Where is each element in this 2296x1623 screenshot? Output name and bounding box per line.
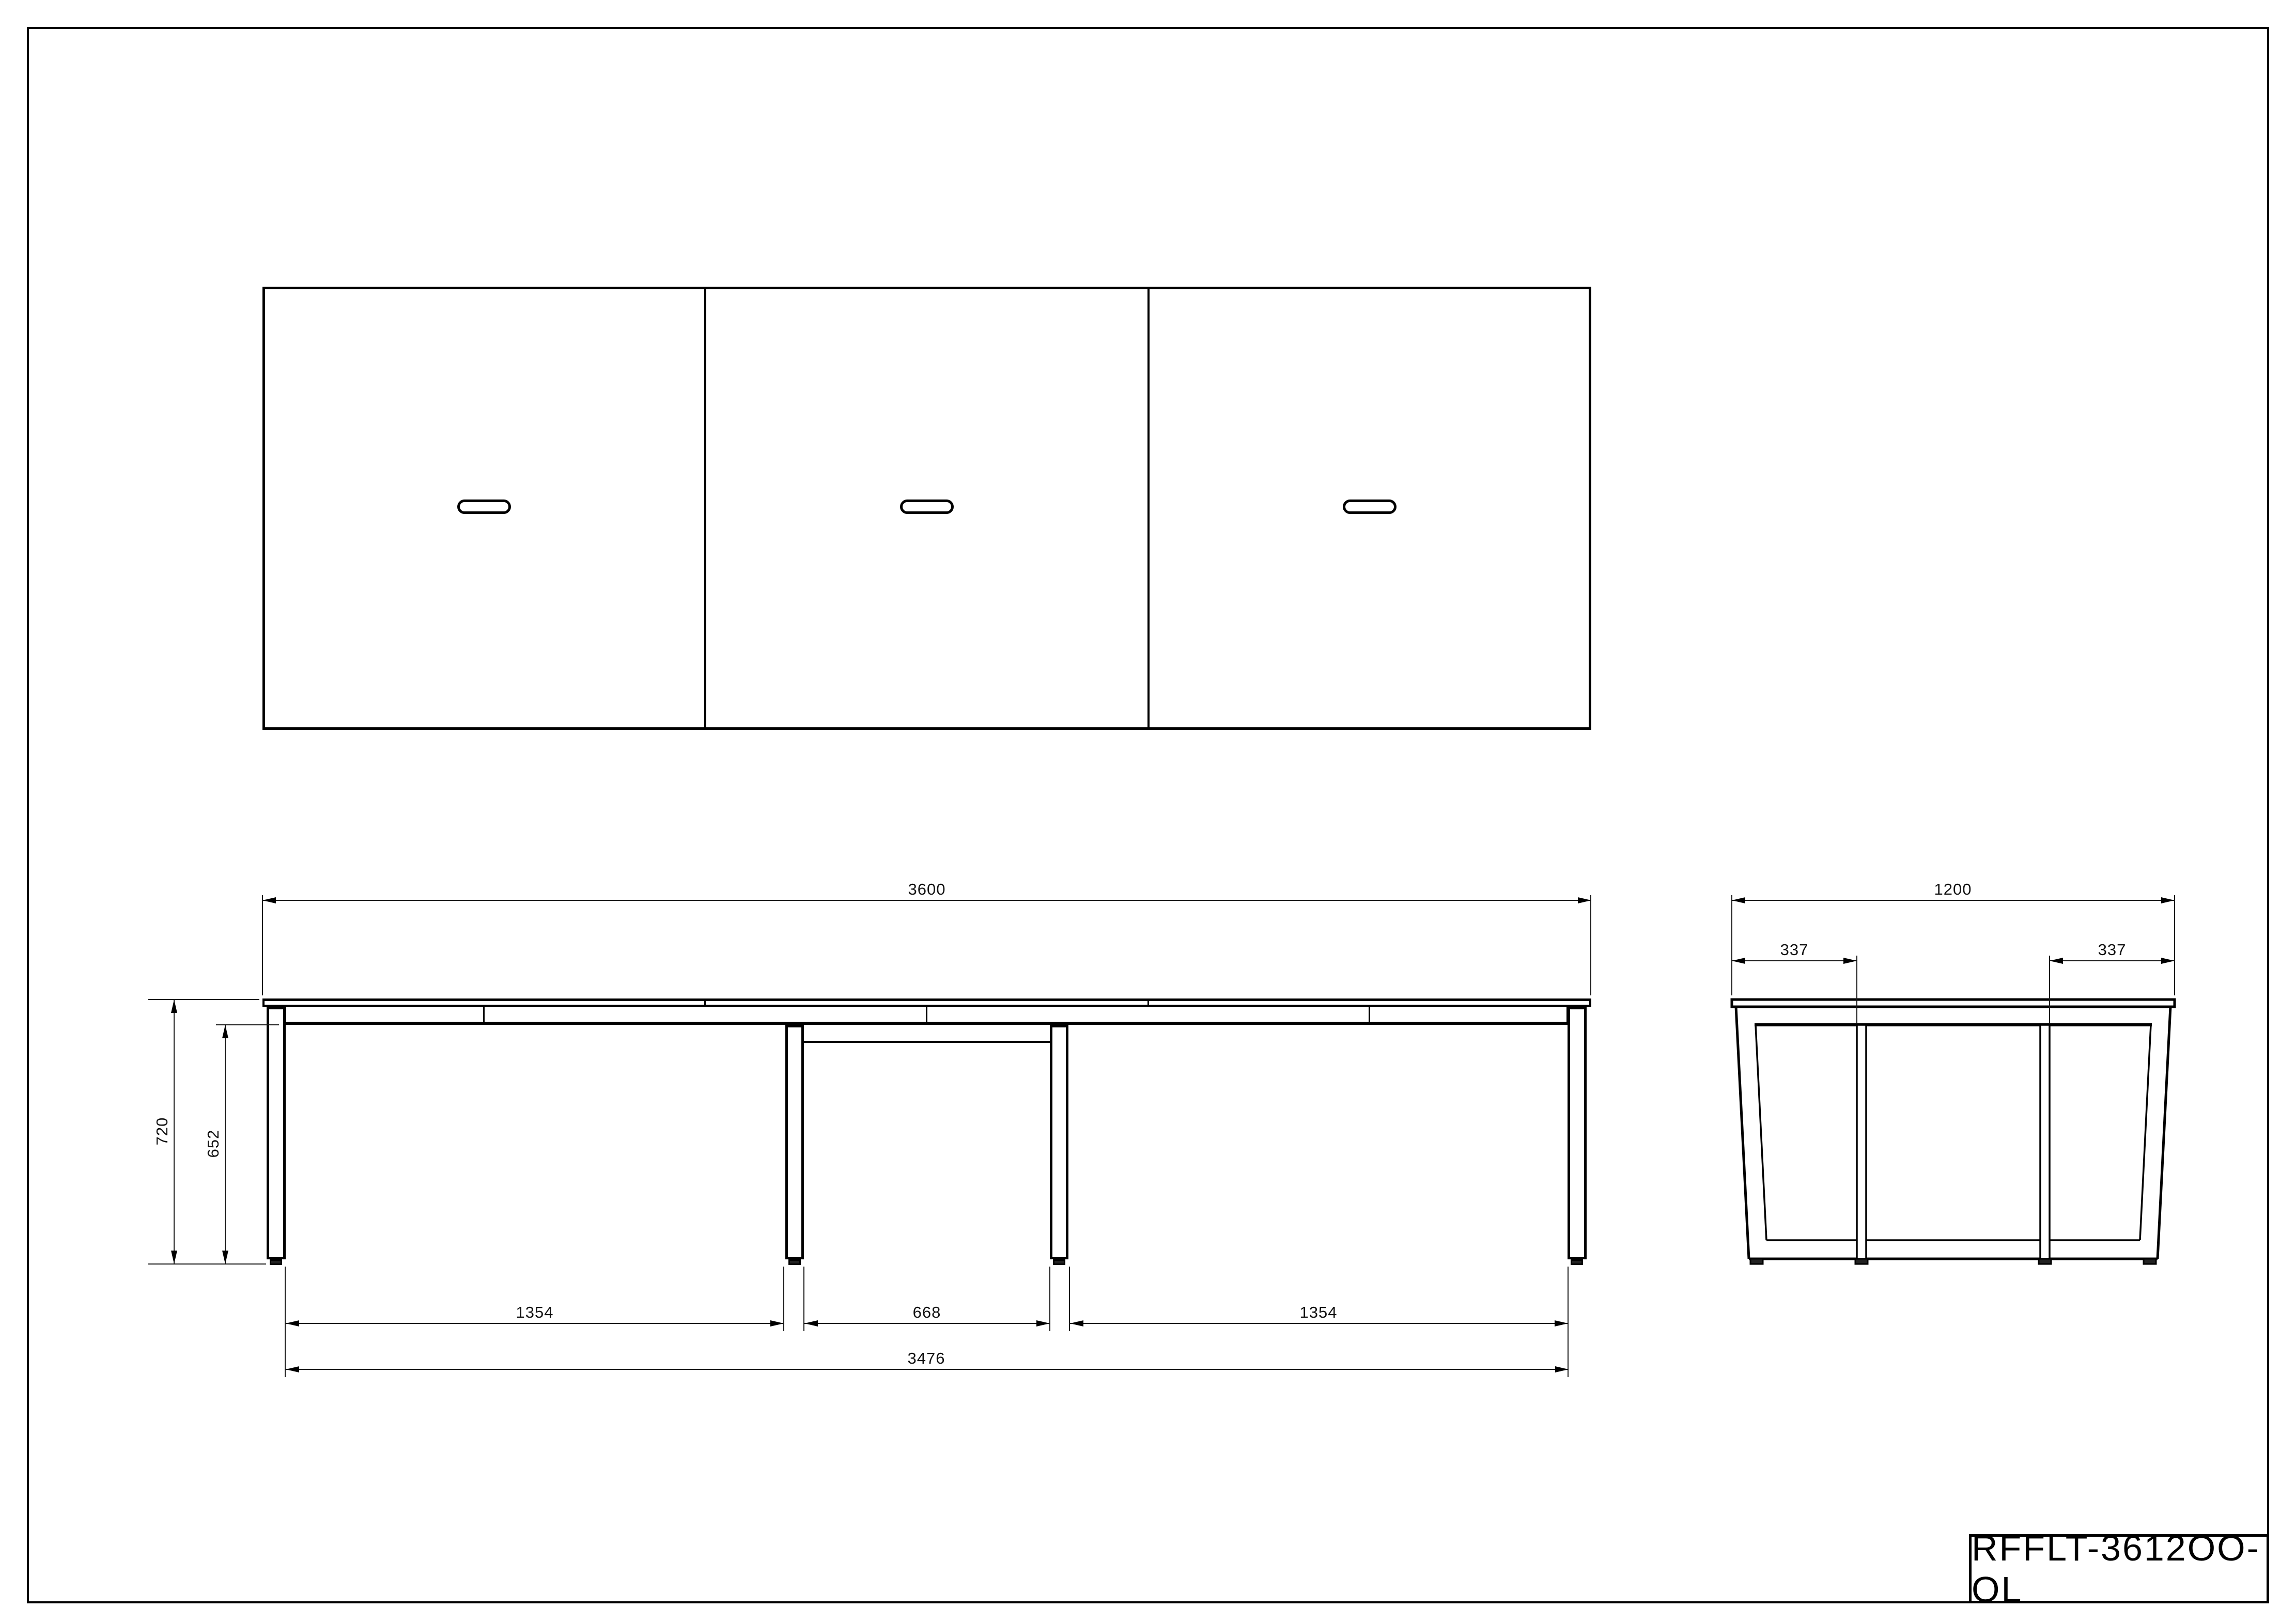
leg-foot [270,1259,282,1265]
ext-line [1731,895,1732,995]
arrowhead [1732,958,1745,964]
arrowhead [2050,958,2063,964]
dim-line-3600 [262,900,1591,901]
leg-foot [788,1259,801,1265]
arrowhead [1578,897,1591,903]
arrowhead [2161,958,2175,964]
arrowhead [222,1025,228,1038]
ext-line [2049,956,2050,1023]
front-apron-joint-1 [483,1007,485,1022]
arrowhead [286,1320,299,1327]
front-apron-joint-3 [1369,1007,1370,1022]
dim-line-1200 [1732,900,2175,901]
front-tabletop [262,998,1591,1007]
ext-line [1590,895,1591,995]
plan-panel-joint-2 [1147,288,1150,728]
grommet-slot-icon [457,500,511,514]
arrowhead [1732,897,1745,903]
dim-label-center-opening: 668 [913,1304,941,1321]
front-left-leg [267,1007,286,1259]
dim-label-front-post-offset: 337 [1780,941,1809,959]
plan-panel-joint-1 [704,288,706,728]
arrowhead [286,1366,299,1372]
front-center-leg-right [1050,1025,1068,1259]
arrowhead [171,1000,177,1013]
front-apron-joint-2 [926,1007,927,1022]
dim-line-1354-left [286,1323,784,1324]
ext-line [148,1263,266,1265]
arrowhead [1070,1320,1083,1327]
arrowhead [1036,1320,1050,1327]
dim-label-foot-span: 3476 [908,1350,945,1367]
dim-label-rear-post-offset: 337 [2098,941,2127,959]
dim-line-720 [174,1000,175,1264]
dim-label-total-width: 3600 [908,881,946,898]
dim-line-337-left [1732,960,1857,961]
arrowhead [770,1320,784,1327]
ext-line [148,999,259,1000]
dim-label-right-span: 1354 [1300,1304,1338,1321]
front-top-joint-1 [704,1001,706,1005]
arrowhead [171,1251,177,1264]
ext-line [1856,956,1857,1023]
drawing-sheet: 3600 720 652 1354 668 1354 [0,0,2296,1623]
ext-line [2174,895,2175,995]
arrowhead [2161,897,2175,903]
front-right-leg [1568,1007,1587,1259]
dim-line-652 [225,1025,226,1264]
arrowhead [1555,1366,1569,1372]
grommet-slot-icon [900,500,954,514]
dim-line-337-right [2050,960,2175,961]
arrowhead [262,897,276,903]
part-number: RFFLT-3612OO-OL [1972,1527,2267,1610]
dim-label-underframe-height: 652 [205,1130,222,1158]
arrowhead [804,1320,818,1327]
front-center-leg-left [785,1025,804,1259]
side-frame-drawing [1720,992,2196,1281]
arrowhead [222,1251,228,1264]
ext-line [262,895,263,995]
dim-line-668 [804,1323,1050,1324]
dim-line-3476 [286,1369,1569,1370]
sheet-border [27,27,2269,1603]
front-center-beam-underside [803,1041,1051,1043]
dim-label-depth: 1200 [1934,881,1972,898]
leg-foot [1571,1259,1583,1265]
title-block: RFFLT-3612OO-OL [1969,1534,2269,1603]
dim-label-left-span: 1354 [516,1304,554,1321]
arrowhead [1555,1320,1568,1327]
dim-label-total-height: 720 [153,1117,171,1146]
arrowhead [1843,958,1857,964]
leg-foot [1053,1259,1065,1265]
grommet-slot-icon [1343,500,1397,514]
dim-line-1354-right [1070,1323,1568,1324]
front-top-joint-2 [1147,1001,1149,1005]
